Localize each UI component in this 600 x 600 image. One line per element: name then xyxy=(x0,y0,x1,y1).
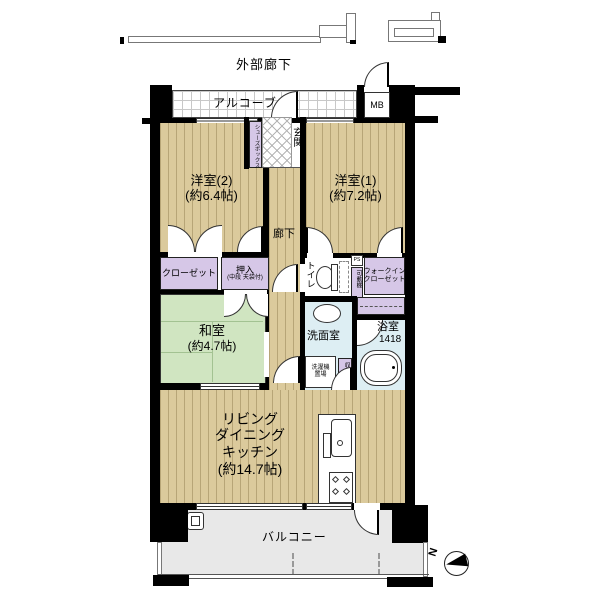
bar-bottom-left xyxy=(153,575,189,586)
balcony-side-wall-left xyxy=(157,542,162,575)
walk-in-closet-label-2: クローゼット xyxy=(364,276,406,284)
pillar-bottom-left xyxy=(150,505,188,542)
washroom-label: 洗面室 xyxy=(307,330,340,343)
west-room-1-label: 洋室(1) (約7.2帖) xyxy=(306,168,405,208)
walk-in-closet-label-1: ウォークイン xyxy=(364,268,406,276)
toilet-tank-icon xyxy=(331,264,338,291)
washbasin-icon xyxy=(313,304,341,323)
alcove-label: アルコーブ xyxy=(213,96,277,110)
compass-north-label: N xyxy=(427,547,442,559)
closet: クローゼット xyxy=(160,257,218,290)
movable-shelf: 可動棚 xyxy=(351,267,363,298)
laundry-label-1: 洗濯機 xyxy=(311,365,329,372)
balcony-door-gap xyxy=(354,503,380,510)
pipe-space-top-label: PS xyxy=(354,258,361,264)
japanese-room-sliding-door xyxy=(264,332,269,377)
pillar-top-left xyxy=(150,85,172,122)
mb-door-arc xyxy=(364,62,389,87)
exterior-corridor-outline-step xyxy=(319,25,349,38)
floor-plan: 外部廊下 アルコーブ MB シューズボックス 玄関 洋室(2) (約6.4帖) … xyxy=(0,0,600,600)
entrance-tile xyxy=(262,117,292,168)
toilet-cabinet-dashed xyxy=(339,261,349,293)
bathroom-label: 浴室 xyxy=(377,321,399,334)
movable-shelf-label: 可動棚 xyxy=(354,270,361,288)
balcony-label: バルコニー xyxy=(262,530,327,544)
stair-outline-tick xyxy=(438,36,446,43)
ldk-label-2: ダイニング xyxy=(215,427,285,444)
west-room-2-size: (約6.4帖) xyxy=(185,188,238,203)
balcony-faucet-inner xyxy=(191,516,200,526)
japanese-room-label: 和室 (約4.7帖) xyxy=(160,315,264,361)
oshiire-label: 押入 xyxy=(236,265,254,276)
hallway-label: 廊下 xyxy=(273,228,295,241)
shoe-box: シューズボックス xyxy=(249,121,262,168)
stair-outline-inner xyxy=(394,28,434,37)
walk-in-closet-extension xyxy=(357,297,405,315)
exterior-corridor-label: 外部廊下 xyxy=(236,57,292,72)
wall-right xyxy=(405,85,415,508)
balcony-edge-line xyxy=(158,574,429,575)
ldk-label: リビング ダイニング キッチン (約14.7帖) xyxy=(190,398,310,490)
meter-box: MB xyxy=(364,92,390,118)
oshiire: 押入 (中段 天袋付) xyxy=(221,257,269,290)
japanese-room-name: 和室 xyxy=(199,323,225,338)
japanese-room-ldk-opening xyxy=(200,383,260,390)
balcony-partition-dashed xyxy=(292,553,294,575)
wall-left xyxy=(150,85,160,510)
meter-box-label: MB xyxy=(365,93,389,117)
laundry-label-2: 置場 xyxy=(314,372,326,379)
exterior-corridor-outline-bar xyxy=(128,36,321,43)
wall-tick-left xyxy=(142,118,150,124)
wall-top-right-ext xyxy=(415,87,460,95)
toilet-label: トイレ xyxy=(305,261,316,288)
bar-bottom-right xyxy=(387,577,433,587)
kitchen-cabinet-icon xyxy=(323,433,331,458)
walk-in-closet-hanger-line xyxy=(360,306,402,307)
shoe-box-label: シューズボックス xyxy=(253,124,259,168)
wall-right-notch xyxy=(415,116,438,123)
kitchen-stove-icon xyxy=(329,472,353,503)
ldk-window-left xyxy=(196,503,303,510)
stair-outline-tab xyxy=(431,12,440,21)
closet-label: クローゼット xyxy=(162,268,216,279)
west-room-1-name: 洋室(1) xyxy=(335,173,377,188)
oshiire-note: (中段 天袋付) xyxy=(227,275,263,282)
ldk-label-3: キッチン xyxy=(222,444,278,461)
outline-tick-end xyxy=(350,40,356,44)
exterior-corridor-outline-end xyxy=(346,13,356,43)
balcony-side-wall-right xyxy=(423,542,428,577)
outline-tick-left xyxy=(120,37,124,44)
west-room-2-label: 洋室(2) (約6.4帖) xyxy=(160,168,263,208)
west-room-2-name: 洋室(2) xyxy=(191,173,233,188)
west-room-1-size: (約7.2帖) xyxy=(329,188,382,203)
ldk-size: (約14.7帖) xyxy=(218,461,283,478)
pillar-bottom-right xyxy=(392,505,428,543)
balcony-partition-dashed xyxy=(378,553,380,575)
japanese-room-size: (約4.7帖) xyxy=(188,339,237,353)
bathtub-drain-dot xyxy=(392,366,395,369)
pipe-space-top: PS xyxy=(351,255,363,266)
ldk-label-1: リビング xyxy=(222,411,278,428)
bathroom-size-label: 1418 xyxy=(379,334,401,346)
kitchen-faucet-icon xyxy=(337,440,343,446)
walk-in-closet: ウォークイン クローゼット xyxy=(364,257,405,295)
kitchen-sink-icon xyxy=(331,419,352,457)
ldk-window-right xyxy=(306,503,352,510)
